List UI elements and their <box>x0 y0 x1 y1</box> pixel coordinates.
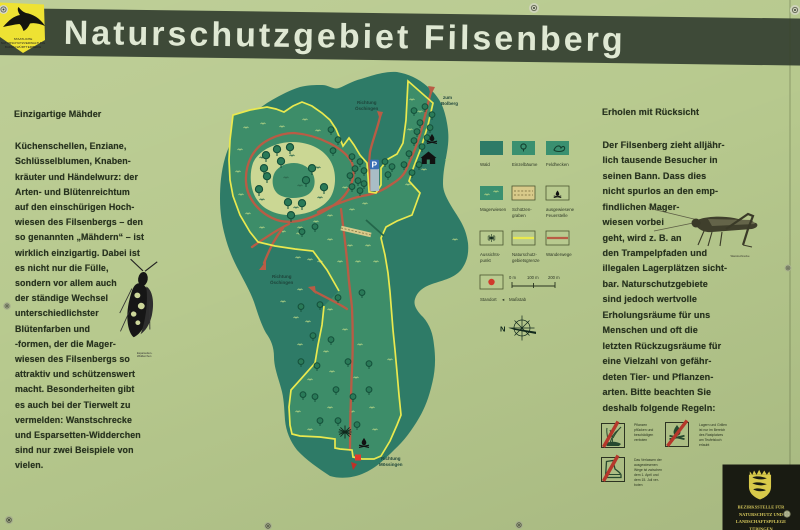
svg-text:Pflanzen: Pflanzen <box>634 423 647 427</box>
svg-text:dem 15. Juli ver-: dem 15. Juli ver- <box>634 478 659 482</box>
svg-text:Das Verlassen der: Das Verlassen der <box>634 458 663 462</box>
svg-text:Wanderwege: Wanderwege <box>546 252 572 257</box>
svg-text:Maßstab: Maßstab <box>509 297 527 302</box>
svg-text:Bolberg: Bolberg <box>441 101 458 106</box>
svg-text:LANDSCHAFTSPFLEGE: LANDSCHAFTSPFLEGE <box>736 519 786 524</box>
svg-text:Lagern und Grillen: Lagern und Grillen <box>699 423 727 427</box>
svg-text:Einzelbäume: Einzelbäume <box>512 162 538 167</box>
svg-text:zum: zum <box>443 95 452 100</box>
svg-text:Richtung: Richtung <box>381 456 401 461</box>
svg-text:Wanstschrecke: Wanstschrecke <box>730 254 749 258</box>
svg-text:P: P <box>372 159 378 169</box>
svg-text:200 m: 200 m <box>548 275 560 280</box>
svg-text:Standort: Standort <box>480 297 497 302</box>
svg-text:Feuerstelle: Feuerstelle <box>546 213 568 218</box>
svg-text:ausgewiesenen: ausgewiesenen <box>634 463 658 467</box>
svg-text:erlaubt: erlaubt <box>699 443 709 447</box>
svg-text:Wege ist zwischen: Wege ist zwischen <box>634 468 662 472</box>
svg-text:verboten: verboten <box>634 438 647 442</box>
svg-text:Naturschutz-: Naturschutz- <box>512 252 537 257</box>
svg-text:Öschingen: Öschingen <box>270 279 294 285</box>
svg-text:NATURSCHUTZ UND: NATURSCHUTZ UND <box>739 512 783 517</box>
svg-text:TÜBINGEN: TÜBINGEN <box>749 526 773 530</box>
svg-text:Aussichts-: Aussichts- <box>480 252 501 257</box>
svg-text:dem 1. April und: dem 1. April und <box>634 473 659 477</box>
svg-text:am Teufelsloch: am Teufelsloch <box>699 438 722 442</box>
svg-text:Öschingen: Öschingen <box>355 105 379 111</box>
svg-text:100 m: 100 m <box>527 275 539 280</box>
svg-text:ausgewiesene: ausgewiesene <box>546 207 575 212</box>
svg-text:boten: boten <box>634 483 643 487</box>
svg-text:BEZIRKSSTELLE FÜR: BEZIRKSSTELLE FÜR <box>738 505 786 510</box>
svg-text:punkt: punkt <box>480 258 492 263</box>
svg-text:◂: ◂ <box>502 297 504 302</box>
svg-text:ist nur im Bereich: ist nur im Bereich <box>699 428 725 432</box>
svg-text:Richtung: Richtung <box>357 100 377 105</box>
svg-text:beschädigen: beschädigen <box>634 433 653 437</box>
svg-text:pflücken und: pflücken und <box>634 428 653 432</box>
svg-text:Mössingen: Mössingen <box>379 462 403 467</box>
svg-text:graben: graben <box>512 213 526 218</box>
svg-text:N: N <box>500 325 505 334</box>
svg-text:Schützen-: Schützen- <box>512 207 532 212</box>
svg-text:Widderchen: Widderchen <box>137 354 152 358</box>
svg-text:des Rastplatzes: des Rastplatzes <box>699 433 723 437</box>
svg-text:Richtung: Richtung <box>272 274 292 279</box>
svg-text:0 m: 0 m <box>509 275 516 280</box>
svg-text:Feldhecken: Feldhecken <box>546 162 569 167</box>
svg-text:Magerwiesen: Magerwiesen <box>480 207 507 212</box>
svg-text:Wald: Wald <box>480 162 490 167</box>
svg-text:gebietsgrenze: gebietsgrenze <box>512 258 540 263</box>
